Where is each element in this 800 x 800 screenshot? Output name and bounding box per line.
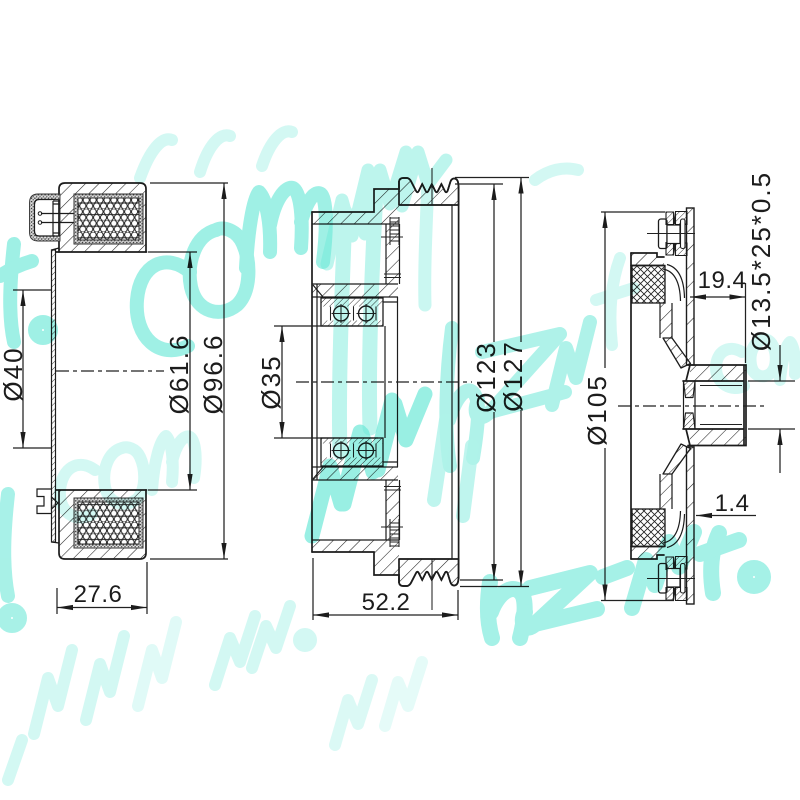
svg-text:Ø105: Ø105 xyxy=(582,374,612,446)
svg-text:Ø13.5*25*0.5: Ø13.5*25*0.5 xyxy=(746,171,776,351)
svg-text:27.6: 27.6 xyxy=(74,581,123,608)
svg-text:52.2: 52.2 xyxy=(362,589,411,616)
svg-text:Ø35: Ø35 xyxy=(256,354,286,409)
svg-text:19.4: 19.4 xyxy=(698,267,747,294)
svg-text:1.4: 1.4 xyxy=(715,490,750,517)
svg-text:Ø40: Ø40 xyxy=(0,346,28,401)
svg-text:Ø96.6: Ø96.6 xyxy=(198,334,228,415)
